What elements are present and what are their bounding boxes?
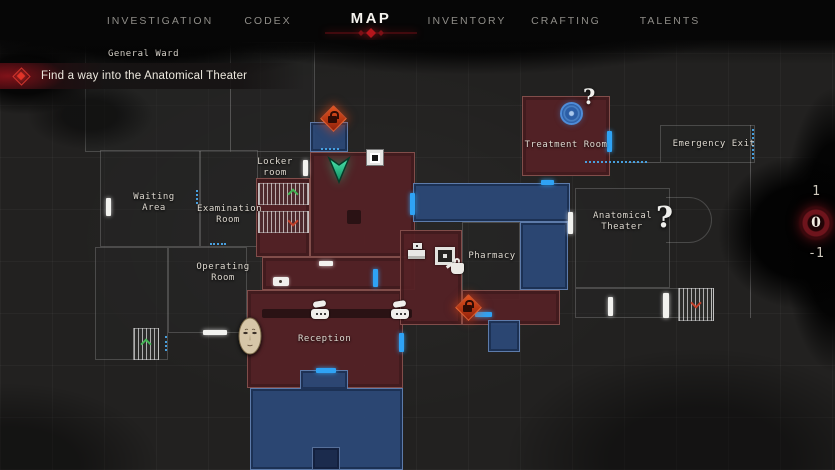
quest-objective-text: Find a way into the Anatomical Theater (41, 63, 247, 89)
map-tab-ornament-icon (323, 28, 419, 38)
map-canvas[interactable]: ? ? General Ward Locker room Waiting Are… (0, 0, 835, 470)
door-marker-dotted (196, 190, 198, 204)
kettle-icon (451, 263, 464, 274)
locked-door-icon (320, 105, 346, 131)
door-marker-dotted (321, 148, 339, 150)
door-marker (568, 212, 573, 234)
door-marker (663, 293, 669, 318)
door-marker (203, 330, 227, 335)
floor-selector: 1 0 -1 (794, 182, 835, 286)
telephone-save-icon (390, 301, 410, 321)
wall-line (230, 42, 231, 152)
door-marker (608, 297, 613, 316)
top-nav: INVESTIGATION CODEX MAP INVENTORY CRAFTI… (0, 0, 835, 40)
door-marker-blue (373, 269, 378, 287)
tab-map[interactable]: MAP (351, 10, 392, 27)
room-blue-corridor (413, 183, 570, 222)
tab-crafting[interactable]: CRAFTING (531, 15, 601, 27)
face-mask-icon (237, 316, 263, 358)
wall-line (750, 125, 751, 318)
tab-codex[interactable]: CODEX (244, 15, 291, 27)
unknown-marker: ? (656, 200, 673, 234)
door-marker-blue (410, 193, 415, 215)
door-marker (319, 261, 333, 266)
blue-seal-icon (560, 102, 583, 125)
stairs-up-icon (258, 183, 309, 205)
room-blue-corridor-arm (520, 222, 568, 290)
room-label-examination-room: Examination Room (197, 204, 259, 226)
floor-button-minus-1[interactable]: -1 (808, 244, 824, 264)
room-label-operating-room: Operating Room (196, 262, 250, 284)
unknown-marker: ? (583, 84, 595, 109)
room-operating-room (168, 247, 247, 333)
stairs-down-icon (678, 288, 714, 321)
locked-door-icon (455, 294, 481, 320)
room-examination-room (200, 150, 258, 247)
door-marker (303, 160, 308, 176)
player-position-icon (326, 155, 352, 185)
door-marker-dotted (165, 336, 167, 351)
stairs-up-icon (133, 328, 159, 360)
objective-diamond-icon (14, 69, 28, 83)
door-marker (106, 198, 111, 216)
telephone-save-icon (310, 301, 330, 321)
floor-button-1[interactable]: 1 (812, 182, 820, 202)
room-label-waiting-area: Waiting Area (130, 192, 178, 214)
room-blue-lower-opening (312, 447, 340, 470)
room-label-anatomical-theater: Anatomical Theater (593, 211, 651, 233)
tab-talents[interactable]: TALENTS (640, 15, 700, 27)
room-blue-small-right (488, 320, 520, 352)
table (347, 210, 361, 224)
quest-banner: Find a way into the Anatomical Theater (0, 63, 305, 89)
room-label-pharmacy: Pharmacy (468, 251, 516, 262)
picture-frame-icon (366, 149, 384, 166)
door-marker-blue (541, 180, 554, 185)
room-label-locker-room: Locker room (256, 157, 294, 179)
room-label-reception: Reception (298, 334, 350, 345)
door-marker-blue (399, 333, 404, 352)
room-label-treatment-room: Treatment Room (524, 140, 608, 151)
door-marker-blue (316, 368, 336, 373)
stairs-down-icon (258, 211, 309, 233)
floor-button-0-current[interactable]: 0 (798, 205, 834, 241)
tab-inventory[interactable]: INVENTORY (428, 15, 507, 27)
door-marker-dotted (210, 243, 226, 245)
door-knob-icon (273, 277, 289, 286)
tab-investigation[interactable]: INVESTIGATION (107, 15, 213, 27)
current-floor-label: 0 (811, 215, 821, 231)
door-marker-dotted (585, 161, 647, 163)
register-icon (408, 243, 426, 263)
room-label-emergency-exit: Emergency Exit (672, 139, 756, 150)
